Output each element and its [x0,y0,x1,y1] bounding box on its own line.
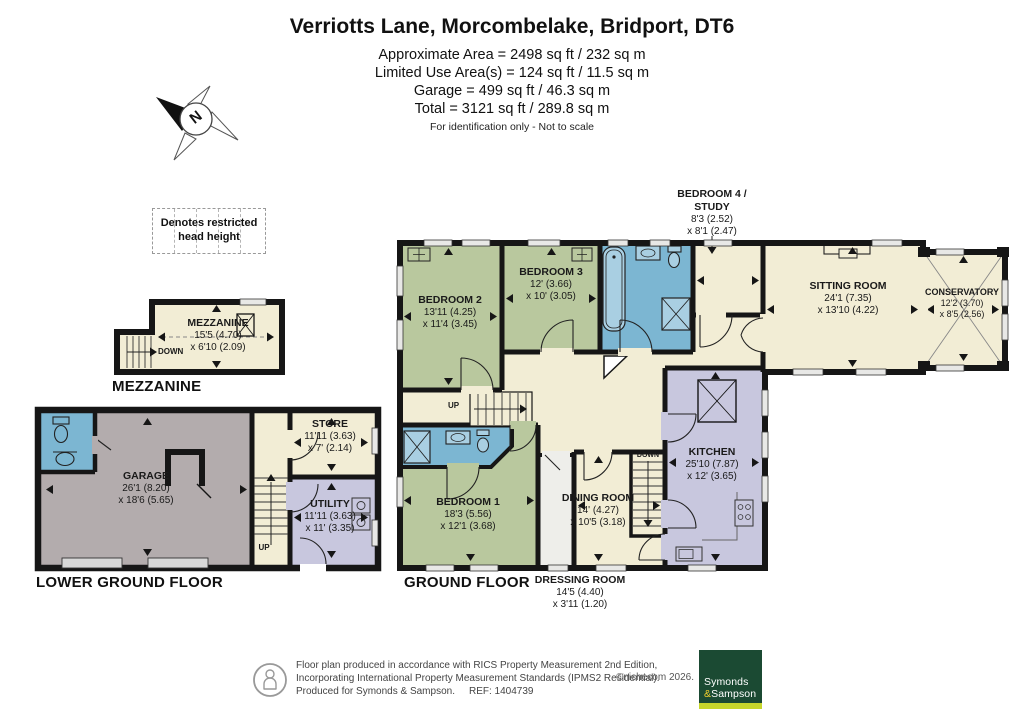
stair-label-up-ground: UP [448,401,459,411]
area-line-approximate: Approximate Area = 2498 sq ft / 232 sq m [0,47,1024,63]
logo-line-2: &Sampson [704,688,762,700]
area-line-limited-use: Limited Use Area(s) = 124 sq ft / 11.5 s… [0,65,1024,81]
footer-disclaimer: Floor plan produced in accordance with R… [296,659,660,698]
logo-accent-bar [699,703,762,709]
shower-icon [662,298,690,330]
footer-line-3: Produced for Symonds & Sampson.REF: 1404… [296,685,660,698]
logo-line-1: Symonds [704,676,762,688]
legend-text: Denotes restricted head height [159,217,259,245]
room-label-mezzanine: MEZZANINE 15'5 (4.70) x 6'10 (2.09) [187,317,248,354]
room-label-sitting-room: SITTING ROOM 24'1 (7.35) x 13'10 (4.22) [810,280,887,317]
stair-label-down-ground: DOWN [637,452,659,461]
ground-stairs-up [470,392,532,426]
cupboard-icon [572,248,592,261]
room-label-dressing-room: DRESSING ROOM 14'5 (4.40) x 3'11 (1.20) [535,574,625,611]
room-label-utility: UTILITY 11'11 (3.63) x 11' (3.35) [304,498,356,535]
stair-label-up-lower: UP [258,543,269,553]
window [372,520,378,546]
sink-icon [446,431,470,444]
toilet-icon [53,417,69,443]
room-label-dining-room: DINING ROOM 14' (4.27) x 10'5 (3.18) [562,492,634,529]
floor-title-ground: GROUND FLOOR [404,574,530,591]
cupboard-icon [408,248,430,261]
page-title: Verriotts Lane, Morcombelake, Bridport, … [0,15,1024,39]
area-line-garage: Garage = 499 sq ft / 46.3 sq m [0,83,1024,99]
window [372,428,378,454]
room-label-bedroom-3: BEDROOM 3 12' (3.66) x 10' (3.05) [519,266,583,303]
footer-line-2: Incorporating International Property Mea… [296,672,660,685]
bath-icon [603,247,625,331]
stair-label-down-mezzanine: DOWN [158,347,183,357]
hob-icon [735,500,753,526]
window [240,299,266,305]
floor-title-lower-ground: LOWER GROUND FLOOR [36,574,223,591]
footer-line-1: Floor plan produced in accordance with R… [296,659,660,672]
sink-icon [636,246,660,260]
garage-door [62,558,122,568]
floor-title-mezzanine: MEZZANINE [112,378,201,395]
symonds-sampson-logo: Symonds &Sampson [699,650,762,709]
room-label-store: STORE 11'11 (3.63) x 7' (2.14) [304,418,356,455]
kitchen-sink-icon [676,547,702,561]
room-label-bedroom-2: BEDROOM 2 13'11 (4.25) x 11'4 (3.45) [418,294,482,331]
area-line-total: Total = 3121 sq ft / 289.8 sq m [0,101,1024,117]
identification-note: For identification only - Not to scale [0,121,1024,133]
skylight-icon [698,380,736,422]
shower-icon [404,431,430,463]
room-label-kitchen: KITCHEN 25'10 (7.87) x 12' (3.65) [685,446,738,483]
garage-door [148,558,208,568]
toilet-icon [668,246,681,268]
room-label-bedroom-1: BEDROOM 1 18'3 (5.56) x 12'1 (3.68) [436,496,500,533]
person-icon [254,664,286,696]
room-label-bedroom-4-study: BEDROOM 4 / STUDY 8'3 (2.52) x 8'1 (2.47… [677,188,746,238]
toilet-icon [477,430,489,452]
footer-copyright: ©nichecom 2026. [616,672,694,683]
restricted-head-height-legend: Denotes restricted head height [152,208,266,254]
footer-ref: REF: 1404739 [469,686,534,697]
room-label-conservatory: CONSERVATORY 12'2 (3.70) x 8'5 (2.56) [925,287,999,320]
room-label-garage: GARAGE 26'1 (8.20) x 18'6 (5.65) [118,470,173,507]
floor-plan-page: Verriotts Lane, Morcombelake, Bridport, … [0,0,1024,724]
